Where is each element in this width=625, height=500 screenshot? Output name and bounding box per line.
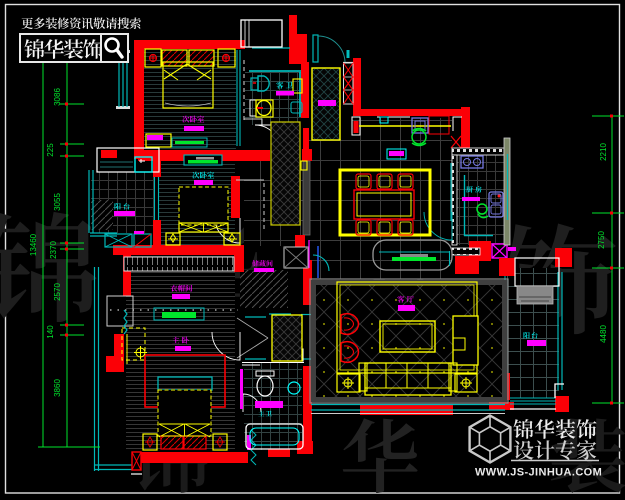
svg-text:3860: 3860 (53, 379, 62, 397)
svg-text:4480: 4480 (599, 325, 608, 343)
svg-text:3055: 3055 (53, 193, 62, 211)
svg-text:3086: 3086 (53, 88, 62, 106)
svg-text:2370: 2370 (49, 241, 58, 259)
svg-text:2750: 2750 (597, 231, 606, 249)
svg-text:225: 225 (46, 143, 55, 157)
svg-text:2210: 2210 (599, 143, 608, 161)
svg-text:13460: 13460 (29, 233, 38, 256)
svg-text:140: 140 (46, 325, 55, 339)
svg-text:2570: 2570 (53, 283, 62, 301)
svg-text:WWW.JS-JINHUA.COM: WWW.JS-JINHUA.COM (475, 467, 602, 479)
